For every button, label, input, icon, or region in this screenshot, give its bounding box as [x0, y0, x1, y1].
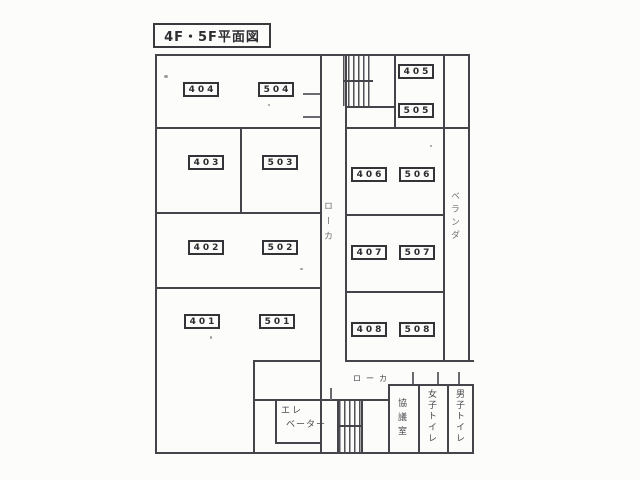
room-label-505: 505 — [398, 103, 434, 118]
room-label-504: 504 — [258, 82, 294, 97]
door-mark — [458, 372, 460, 384]
wall — [361, 399, 363, 453]
corridor-bottom-label: ローカ — [353, 373, 392, 384]
wall — [345, 291, 443, 293]
door-mark — [303, 116, 320, 118]
plan-title: 4F・5F平面図 — [153, 23, 271, 48]
wall — [388, 384, 474, 386]
door-mark — [303, 93, 320, 95]
room-label-404: 404 — [183, 82, 219, 97]
room-label-403: 403 — [188, 155, 224, 170]
corridor-label: ローカ — [322, 201, 331, 246]
wall — [155, 127, 322, 129]
wall — [345, 360, 474, 362]
veranda-label: ベランダ — [449, 191, 458, 243]
stair-landing-line — [343, 80, 373, 82]
wall — [253, 360, 255, 453]
stair-landing-line — [339, 425, 361, 427]
wall — [345, 106, 395, 108]
wall — [388, 384, 390, 453]
wall — [253, 399, 388, 401]
wall — [253, 360, 322, 362]
wall — [320, 54, 322, 453]
room-label-408: 408 — [351, 322, 387, 337]
room-label-401: 401 — [184, 314, 220, 329]
room-label-405: 405 — [398, 64, 434, 79]
scan-speck — [268, 104, 270, 106]
elevator-label-line2: ベーター — [286, 417, 326, 430]
door-mark — [330, 388, 332, 400]
wall — [472, 384, 474, 453]
door-mark — [412, 372, 414, 384]
floor-plan-canvas: 4F・5F平面図 404 504 403 503 402 502 — [0, 0, 640, 480]
room-label-508: 508 — [399, 322, 435, 337]
wall — [345, 214, 443, 216]
wall — [345, 127, 470, 129]
room-label-502: 502 — [262, 240, 298, 255]
room-label-407: 407 — [351, 245, 387, 260]
wall — [468, 54, 470, 362]
meeting-room-label: 協議室 — [396, 398, 405, 440]
scan-speck — [300, 268, 303, 270]
wall — [394, 54, 396, 128]
room-label-406: 406 — [351, 167, 387, 182]
wall — [443, 54, 445, 362]
wall — [240, 127, 242, 214]
wall — [275, 399, 277, 444]
door-mark — [437, 372, 439, 384]
wall — [418, 384, 420, 453]
scan-speck — [430, 145, 432, 147]
wall — [447, 384, 449, 453]
room-label-402: 402 — [188, 240, 224, 255]
wall — [155, 54, 157, 454]
room-label-501: 501 — [259, 314, 295, 329]
wall — [275, 442, 320, 444]
scan-speck — [164, 75, 168, 78]
scan-speck — [210, 336, 212, 339]
mens-toilet-label: 男子トイレ — [454, 389, 463, 444]
womens-toilet-label: 女子トイレ — [426, 389, 435, 444]
wall — [155, 452, 474, 454]
room-label-507: 507 — [399, 245, 435, 260]
room-label-503: 503 — [262, 155, 298, 170]
elevator-label-line1: エレ — [281, 403, 303, 416]
wall — [155, 54, 470, 56]
wall — [155, 287, 322, 289]
wall — [155, 212, 322, 214]
room-label-506: 506 — [399, 167, 435, 182]
